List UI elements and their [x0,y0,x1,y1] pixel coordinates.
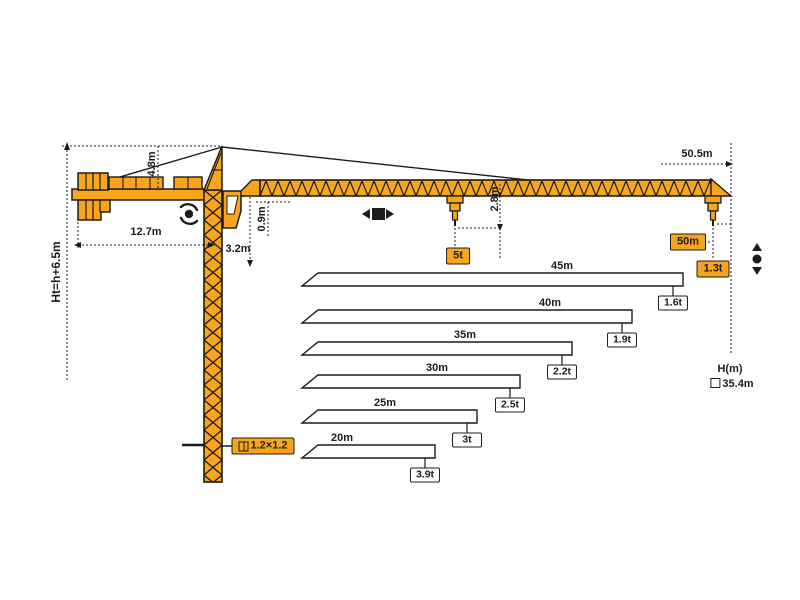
counter-jib [72,173,215,220]
tower-mast [204,190,222,482]
jib-length-bar [302,445,435,458]
dimension-arrows [64,142,733,267]
jib-length-bar [302,410,477,423]
jib-length-bar [302,375,520,388]
tower-apex [204,146,222,190]
machinery-units [109,177,202,189]
hoist-up-down-icon [752,243,762,275]
jib-tip [711,179,731,196]
trolley-hook-mid [447,196,463,226]
jib-length-bar [302,342,572,355]
crane-load-diagram: Ht=h+6.5m 4.8m 12.7m 3.2m 0.9m 2.8m 50.5… [0,0,800,600]
jib-length-bar [302,273,683,286]
jib [241,179,731,196]
trolley-hook-tip [705,196,721,226]
slewing-rotation-icon [181,204,197,224]
trolley-travel-icon [362,208,394,220]
jib-length-bar [302,310,632,323]
jib-length-bars [302,273,683,468]
crane-drawing [0,0,800,600]
